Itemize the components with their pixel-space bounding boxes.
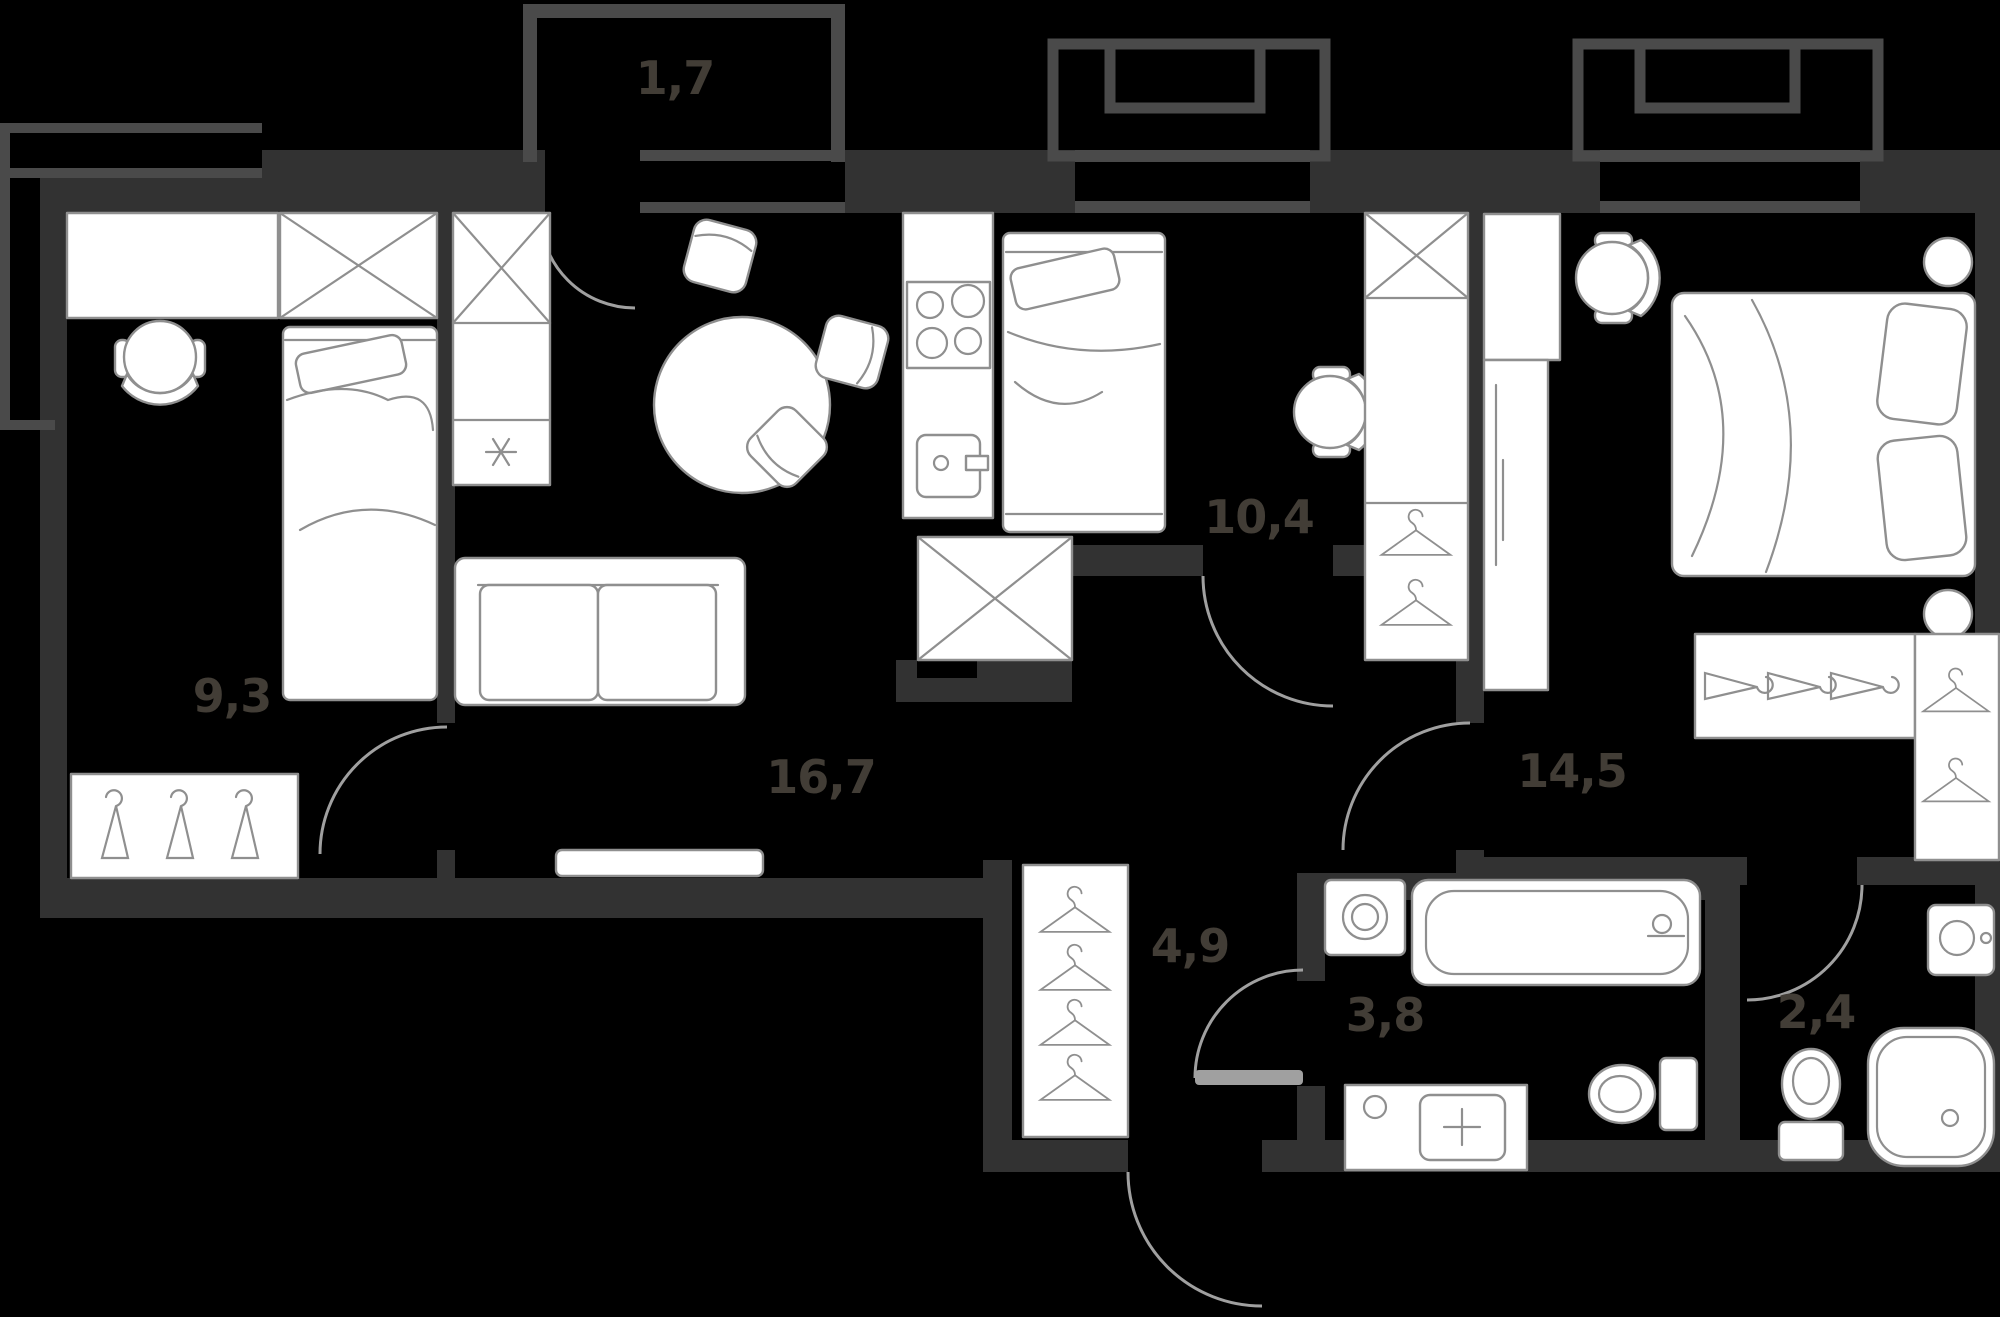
door-bedroom-main (1343, 723, 1470, 850)
door-balcony (540, 213, 635, 308)
nightstand (1924, 590, 1972, 638)
room-label-kitchen: 10,4 (1204, 490, 1314, 544)
room-label-bathroom: 3,8 (1346, 988, 1425, 1042)
door-entrance (1128, 1172, 1262, 1306)
sink-vanity (1345, 1085, 1527, 1170)
room-label-living: 16,7 (766, 750, 876, 804)
dining-chair (681, 217, 759, 295)
bed-double (1672, 293, 1975, 576)
room-label-bedroom-small: 9,3 (193, 669, 272, 723)
fridge-cabinet (453, 213, 550, 485)
room-bedroom-small (67, 213, 437, 878)
office-chair (1576, 233, 1660, 323)
railing-kitchen (1053, 44, 1325, 156)
shower-base (1868, 1028, 1994, 1166)
closet-hangers-tall (1915, 634, 1999, 860)
bathtub (1412, 880, 1700, 985)
corner-sink (1928, 905, 1994, 975)
stove (907, 282, 990, 368)
bed-single (283, 327, 437, 700)
office-chair (115, 321, 205, 405)
desk (1484, 214, 1560, 360)
window-balcony (640, 150, 845, 213)
toilet (1779, 1049, 1843, 1160)
toilet (1589, 1058, 1697, 1130)
desk (67, 213, 278, 318)
cabinet-x (918, 537, 1072, 660)
door-kitchen (1203, 576, 1333, 706)
room-label-wc: 2,4 (1777, 985, 1856, 1039)
wardrobe (1484, 360, 1548, 690)
closet-hangers-wide (1695, 634, 1915, 738)
wardrobe-column (1365, 213, 1468, 660)
railing-bedroom (1578, 44, 1878, 156)
floor-plan: 1,7 9,3 16,7 10,4 14,5 4,9 3,8 2,4 (0, 0, 2000, 1317)
door-bedroom-small (320, 727, 447, 854)
room-label-bedroom-main: 14,5 (1517, 744, 1627, 798)
door-bathroom (1195, 970, 1303, 1078)
door-bathroom-leaf (1195, 1070, 1303, 1085)
entry-closet (1023, 865, 1128, 1137)
room-kitchen (903, 213, 1468, 660)
room-hallway (1023, 865, 1128, 1137)
pillow (1876, 434, 1968, 562)
sink (917, 435, 988, 497)
nightstand (1924, 238, 1972, 286)
room-label-hallway: 4,9 (1151, 919, 1230, 973)
pillow (1875, 302, 1969, 427)
wardrobe-x (280, 213, 437, 318)
sofa (455, 558, 745, 705)
washing-machine (1325, 880, 1405, 955)
room-label-balcony: 1,7 (636, 51, 715, 105)
closet-hangers (71, 774, 298, 878)
tv-console (556, 850, 763, 876)
door-wc (1747, 885, 1862, 1000)
bed-single (1003, 233, 1165, 532)
